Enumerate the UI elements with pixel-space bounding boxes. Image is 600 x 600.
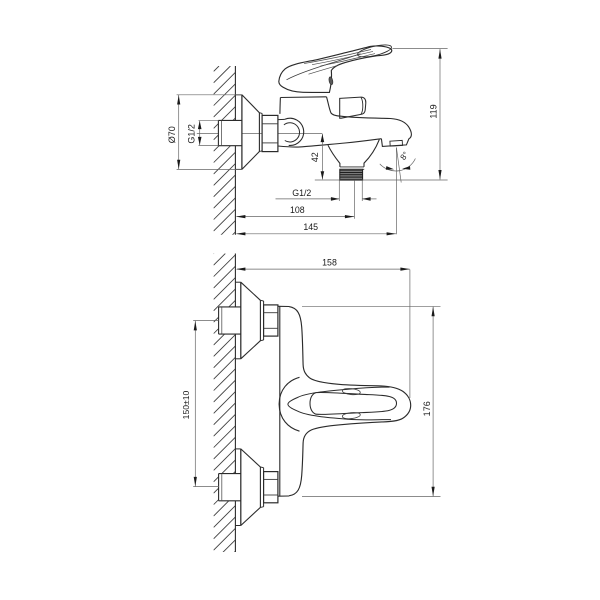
svg-text:G1/2: G1/2 [292,188,311,198]
svg-text:150±10: 150±10 [181,390,191,419]
svg-text:145: 145 [303,222,318,232]
svg-text:108: 108 [290,205,305,215]
svg-text:158: 158 [322,258,337,268]
svg-text:176: 176 [422,401,432,416]
svg-text:Ø70: Ø70 [167,126,177,143]
svg-text:42: 42 [310,152,320,162]
svg-text:119: 119 [429,104,439,118]
svg-text:G1/2: G1/2 [187,124,197,144]
